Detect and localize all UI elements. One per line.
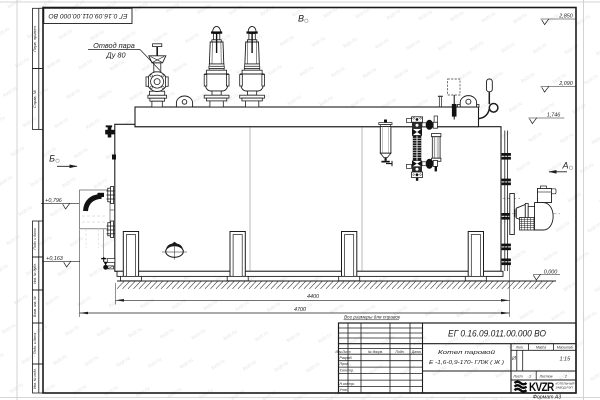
svg-text:Н.контр.: Н.контр. [340,382,355,386]
svg-text:Инв. № дубл.: Инв. № дубл. [33,263,37,284]
svg-text:ЕГ 0.16.09.011.00.000 ВО: ЕГ 0.16.09.011.00.000 ВО [48,12,128,19]
svg-text:Листов: Листов [538,375,552,379]
svg-text:2,090: 2,090 [558,81,573,87]
svg-text:2: 2 [564,375,567,379]
svg-text:Подп. и дата: Подп. и дата [33,228,37,249]
svg-text:KVZR: KVZR [529,382,555,394]
svg-text:Отвод пара: Отвод пара [93,41,135,50]
svg-text:Дата: Дата [411,350,421,354]
svg-text:Котел паровой: Котел паровой [438,349,496,356]
svg-text:Все размеры для справок: Все размеры для справок [344,314,401,319]
svg-text:1: 1 [529,375,531,379]
svg-text:ЕГ 0.16.09.011.00.000 ВО: ЕГ 0.16.09.011.00.000 ВО [448,329,546,339]
svg-text:Подп.: Подп. [395,350,404,354]
svg-text:Утв.: Утв. [340,388,348,392]
svg-text:Перв. примен.: Перв. примен. [32,25,37,52]
svg-text:Справ. №: Справ. № [32,89,37,108]
svg-text:Взам. инв. №: Взам. инв. № [33,296,37,317]
svg-text:Б: Б [49,154,55,164]
svg-text:Е -1,6-0,9-170- ГЛЖ ( Ж ): Е -1,6-0,9-170- ГЛЖ ( Ж ) [429,360,504,366]
svg-text:Масса: Масса [536,345,546,349]
svg-text:Подп. и дата: Подп. и дата [33,333,37,354]
svg-text:Масштаб: Масштаб [557,345,573,349]
svg-text:И: И [512,356,516,362]
svg-text:Лист: Лист [512,375,522,379]
svg-text:Инв. № подл.: Инв. № подл. [33,368,37,389]
svg-text:В: В [298,14,304,24]
svg-text:Лит.: Лит. [515,345,524,349]
svg-text:Изм.Лист: Изм.Лист [335,350,350,354]
svg-text:1,746: 1,746 [547,113,561,119]
svg-text:№ докум.: № докум. [368,350,383,354]
svg-text:Т.контр.: Т.контр. [340,369,355,373]
svg-text:ЗАВОД РЭП: ЗАВОД РЭП [556,386,574,390]
svg-text:А: А [561,161,568,171]
svg-text:Пров.: Пров. [340,362,349,366]
svg-text:Формат А3: Формат А3 [533,395,561,400]
svg-text:Разраб.: Разраб. [340,356,353,360]
svg-text:1:15: 1:15 [559,357,571,363]
svg-text:4700: 4700 [294,307,306,313]
svg-text:Ду 80: Ду 80 [105,51,125,60]
svg-text:4400: 4400 [307,294,319,300]
svg-text:2,850: 2,850 [558,14,573,20]
